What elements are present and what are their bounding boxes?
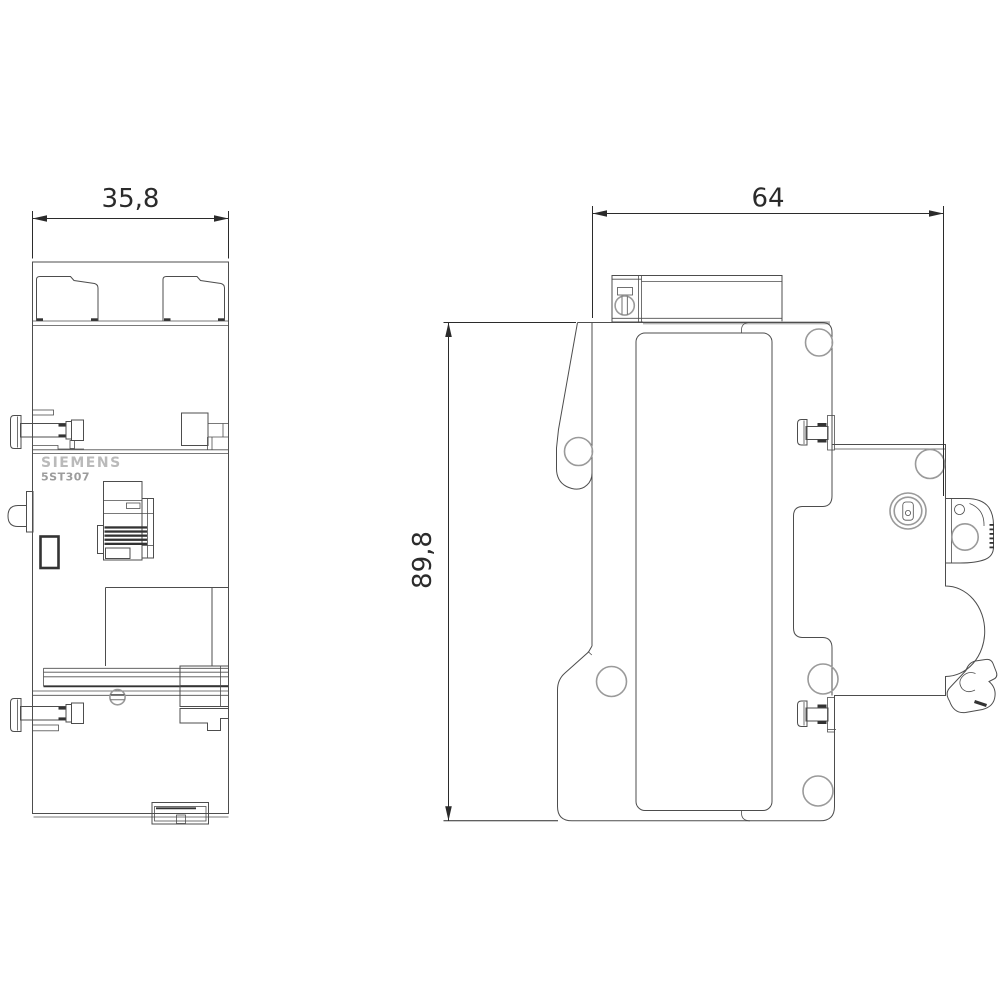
side-width-label: 64 [751,184,784,214]
wing-hole [916,450,945,479]
side-body-outline [558,323,985,821]
front-body-outline [33,262,229,814]
side-pin-upper [798,416,835,451]
busbar-lines [33,668,229,705]
upper-hole [806,329,833,356]
top-right-block [182,413,229,450]
lower-housing [106,588,229,667]
top-tab-right [163,277,225,322]
top-tab-left [37,277,99,322]
center-mechanism [98,482,154,561]
side-view: 64 89,8 [408,184,997,821]
actuator-plunger [8,492,33,533]
lower-hole [803,776,833,806]
din-rail-hook [947,659,997,712]
keyhole [890,493,926,529]
brand-text: SIEMENS [41,455,122,471]
cable-slot [618,288,633,296]
front-terminal-block [180,666,229,731]
claw-hole [565,438,593,466]
front-width-label: 35,8 [102,184,160,214]
center-panel [636,333,772,811]
foot-hole [597,667,627,697]
din-rail-latch [946,499,995,564]
mounting-pin-upper [11,410,85,449]
terminal-screw-front [110,690,125,705]
indicator-window [41,537,59,569]
foot-tab [558,646,593,690]
dimension-drawing-page: SIEMENS 5ST307 [0,0,1000,1000]
dimension-side-height: 89,8 [408,323,576,821]
side-height-label: 89,8 [408,531,438,589]
side-inset-notch [794,445,833,696]
front-view: SIEMENS 5ST307 [8,184,229,824]
terminal-screw-side [615,296,634,315]
model-text: 5ST307 [41,471,90,484]
mounting-pin-lower [11,699,84,732]
side-pin-lower [798,698,837,733]
mid-hole [808,664,838,694]
side-terminal-block [612,276,782,323]
dimension-front-width: 35,8 [33,184,229,259]
technical-dimension-drawing: SIEMENS 5ST307 [0,0,1000,1000]
